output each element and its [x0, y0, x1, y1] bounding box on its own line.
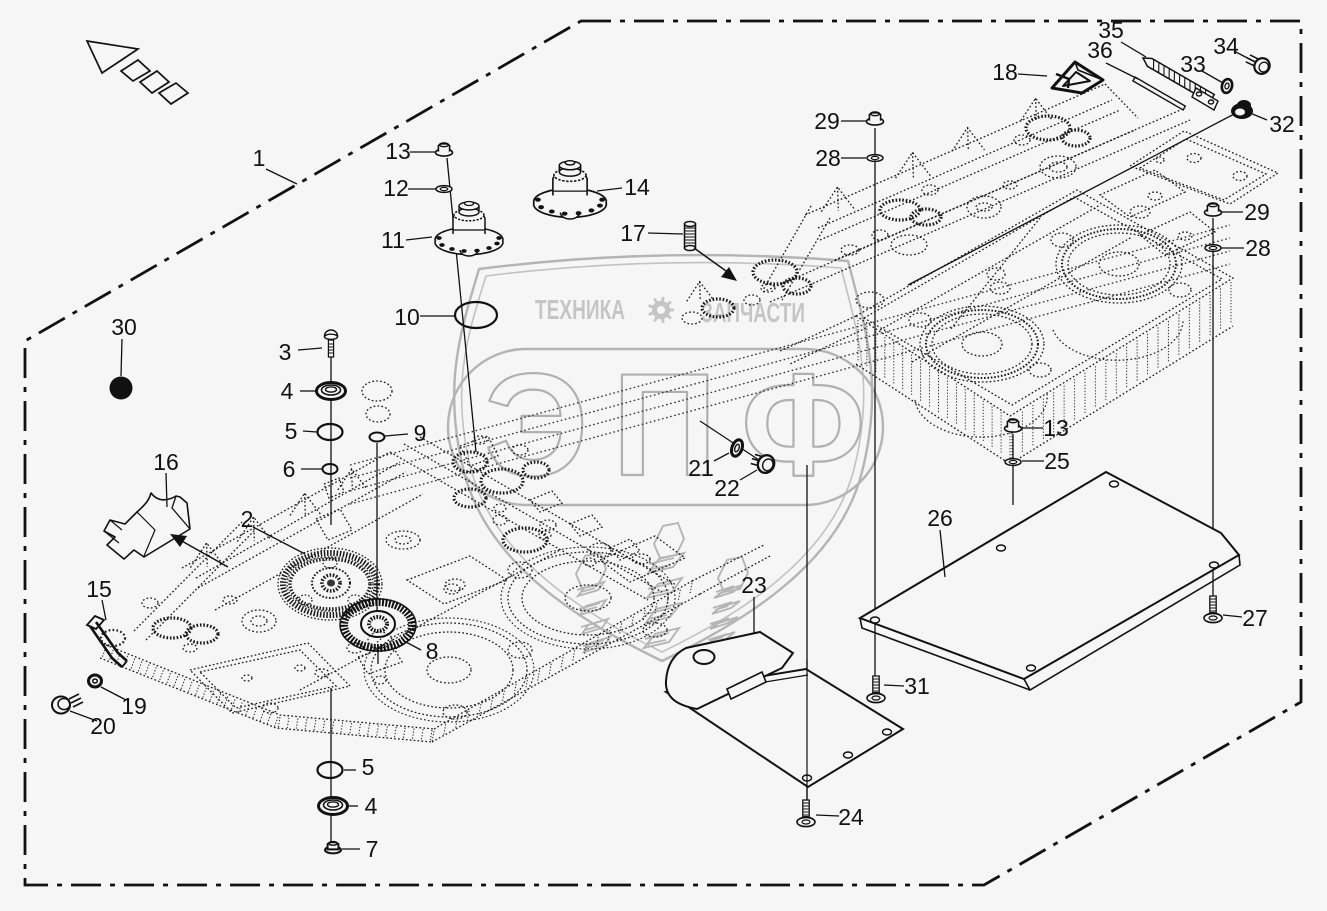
svg-text:11: 11	[381, 227, 405, 253]
svg-text:16: 16	[153, 449, 179, 475]
svg-text:29: 29	[814, 108, 840, 134]
svg-text:25: 25	[1044, 448, 1070, 474]
svg-text:22: 22	[714, 475, 740, 501]
svg-text:29: 29	[1244, 199, 1270, 225]
svg-text:4: 4	[281, 378, 294, 404]
svg-text:34: 34	[1213, 33, 1239, 59]
svg-text:28: 28	[1245, 235, 1271, 261]
svg-text:36: 36	[1087, 37, 1113, 63]
svg-text:8: 8	[426, 638, 439, 664]
svg-text:10: 10	[394, 304, 420, 330]
svg-text:33: 33	[1180, 51, 1206, 77]
svg-text:4: 4	[365, 793, 378, 819]
svg-text:26: 26	[927, 505, 953, 531]
svg-text:ТЕХНИКА: ТЕХНИКА	[535, 294, 625, 325]
svg-text:5: 5	[362, 754, 375, 780]
svg-text:1: 1	[253, 145, 266, 171]
svg-text:9: 9	[414, 420, 427, 446]
svg-text:5: 5	[285, 418, 298, 444]
svg-text:13: 13	[385, 138, 411, 164]
svg-text:14: 14	[624, 174, 650, 200]
svg-text:23: 23	[741, 572, 767, 598]
svg-text:15: 15	[86, 576, 112, 602]
svg-text:20: 20	[90, 713, 116, 739]
svg-text:30: 30	[111, 314, 137, 340]
svg-text:6: 6	[283, 456, 296, 482]
svg-text:19: 19	[121, 693, 147, 719]
svg-text:21: 21	[688, 455, 714, 481]
svg-text:27: 27	[1242, 605, 1268, 631]
svg-text:32: 32	[1269, 111, 1295, 137]
svg-text:31: 31	[904, 673, 930, 699]
svg-text:17: 17	[620, 220, 646, 246]
svg-text:28: 28	[815, 145, 841, 171]
svg-text:ЗАПЧАСТИ: ЗАПЧАСТИ	[701, 297, 805, 328]
svg-text:13: 13	[1043, 415, 1069, 441]
svg-text:2: 2	[241, 506, 254, 532]
svg-text:7: 7	[366, 836, 379, 862]
svg-text:24: 24	[838, 804, 864, 830]
svg-text:12: 12	[383, 175, 409, 201]
svg-text:3: 3	[279, 339, 292, 365]
svg-text:18: 18	[992, 59, 1018, 85]
